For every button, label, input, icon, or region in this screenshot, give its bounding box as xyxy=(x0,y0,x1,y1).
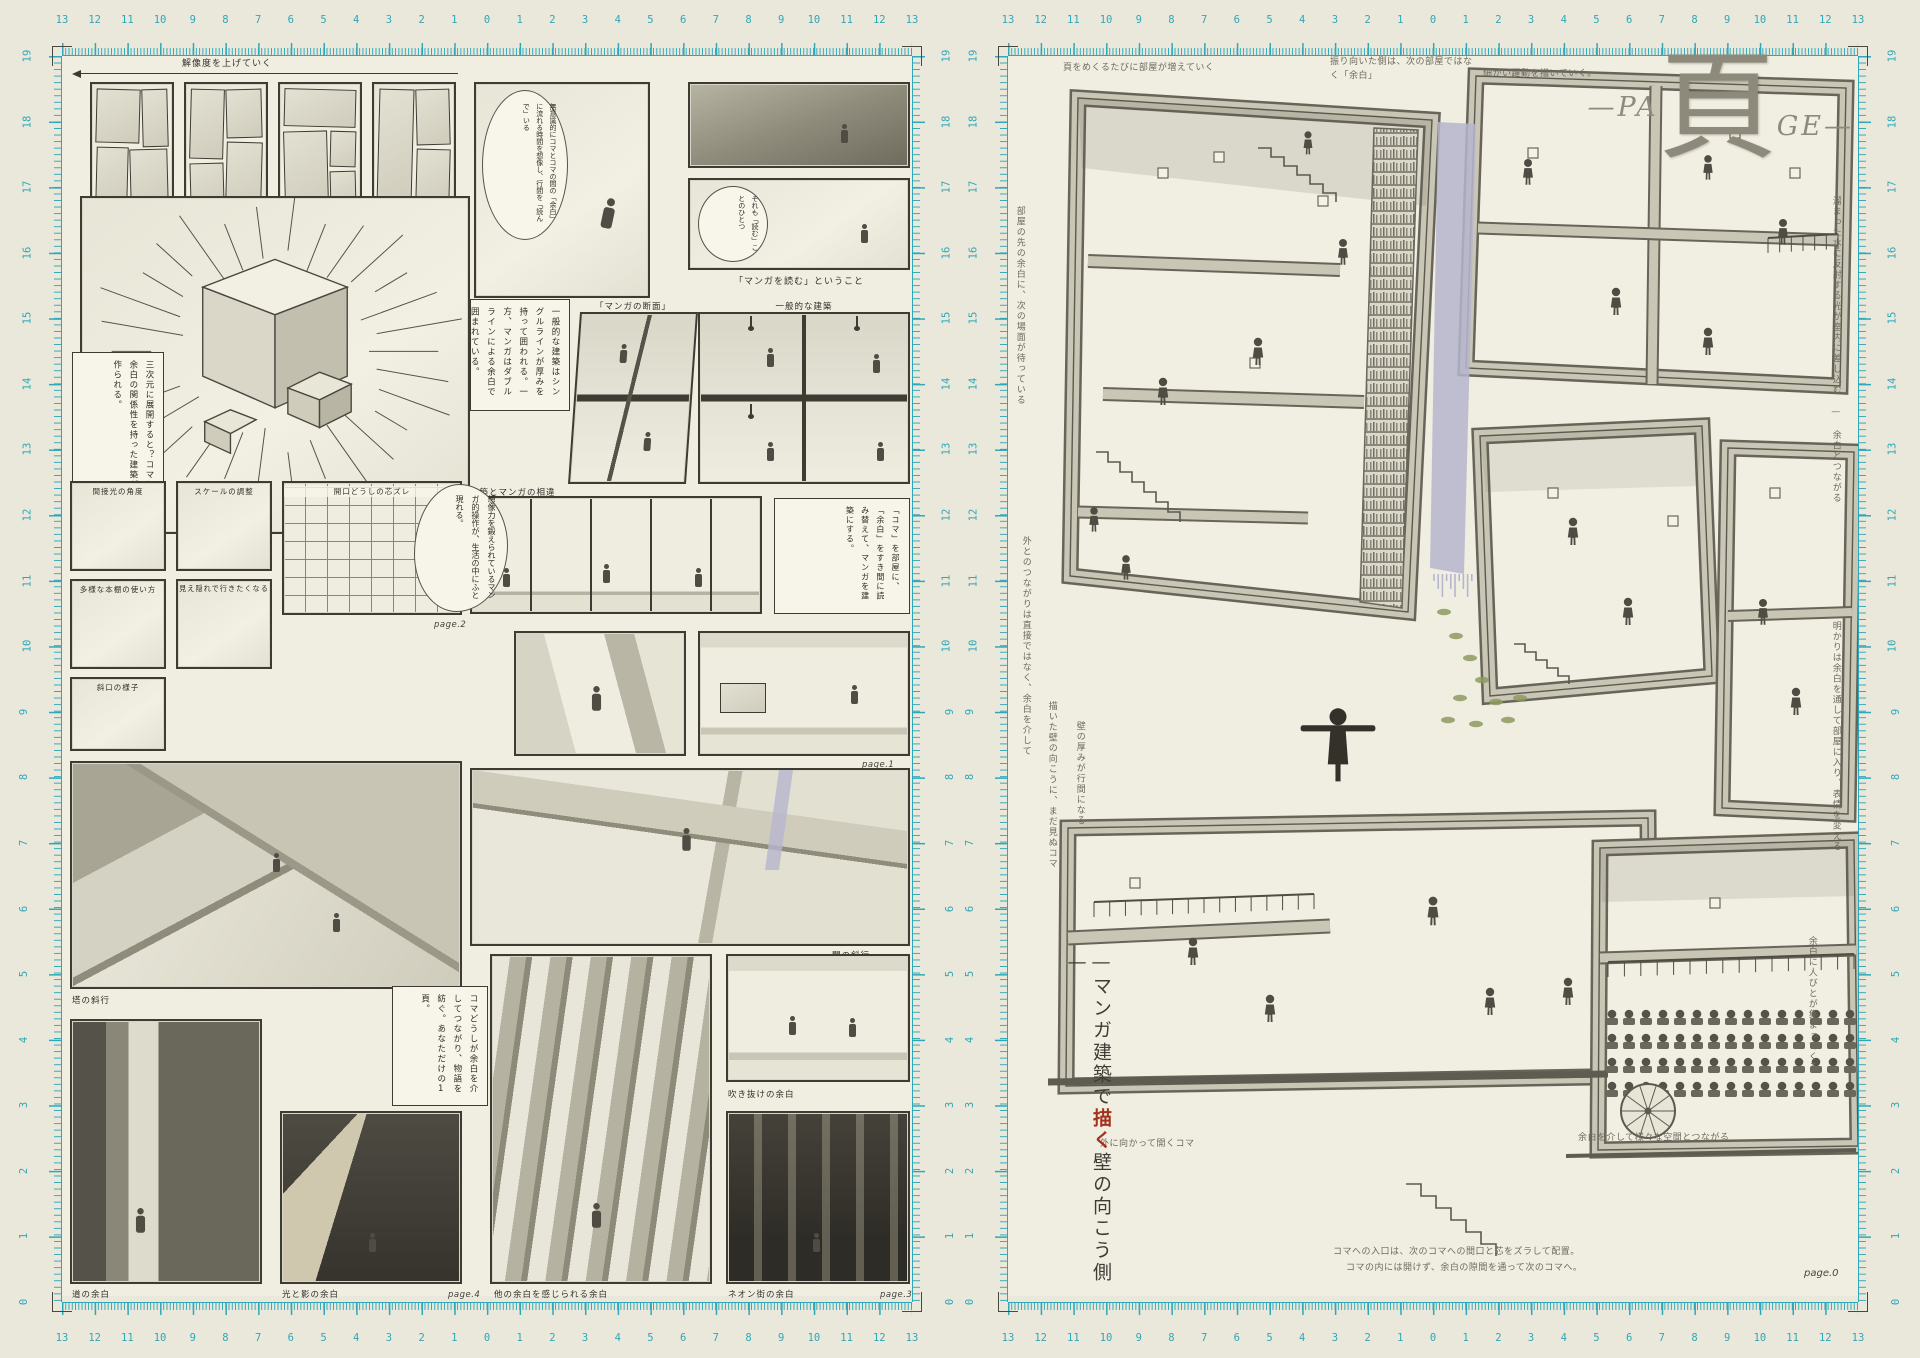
ruler-number: 5 xyxy=(1593,14,1599,26)
ruler-number: 8 xyxy=(1168,14,1174,26)
page2-label: page.2 xyxy=(434,620,466,630)
ruler-number: 0 xyxy=(944,1299,956,1305)
corridor-panel xyxy=(514,631,686,756)
project-title-red: 描く xyxy=(1090,1108,1112,1152)
cube-text-box: 三次元に展開すると？コマと余白の関係性を持った建築が作られる。 xyxy=(72,352,164,502)
ruler-number: 17 xyxy=(1887,181,1899,194)
ruler-number: 1 xyxy=(1890,1233,1902,1239)
thumbnail-sub-panel xyxy=(189,89,224,160)
ruler-number: 14 xyxy=(21,378,33,391)
ruler-left: 191817161514131211109876543210 xyxy=(18,56,62,1302)
ruler-number: 10 xyxy=(1100,1332,1113,1344)
manga-page-thumbnail xyxy=(278,82,362,214)
ruler-number: 2 xyxy=(549,14,555,26)
ruler-number: 5 xyxy=(320,1332,326,1344)
ruler-number: 12 xyxy=(1819,14,1832,26)
ruler-number: 14 xyxy=(941,378,953,391)
building-section-drawing xyxy=(1008,56,1858,1296)
ruler-number: 17 xyxy=(941,181,953,194)
figure-silhouette xyxy=(642,432,652,452)
ruler-number: 6 xyxy=(18,905,30,911)
ruler-ticks xyxy=(49,56,62,1302)
ruler-number: 5 xyxy=(320,14,326,26)
figure-silhouette xyxy=(332,913,341,933)
ruler-number: 0 xyxy=(1430,14,1436,26)
ruler-number: 7 xyxy=(713,1332,719,1344)
ruler-number: 16 xyxy=(941,246,953,259)
ruler-number: 18 xyxy=(1887,115,1899,128)
ruler-number: 11 xyxy=(840,1332,853,1344)
general-arch-panel xyxy=(698,312,910,484)
figure-silhouette xyxy=(602,564,611,584)
ruler-number: 5 xyxy=(944,971,956,977)
ruler-number: 12 xyxy=(88,1332,101,1344)
hanging-lamp xyxy=(750,316,752,327)
ruler-number: 11 xyxy=(840,14,853,26)
ruler-number: 1 xyxy=(18,1233,30,1239)
ruler-number: 8 xyxy=(18,774,30,780)
ruler-number: 4 xyxy=(1561,14,1567,26)
ruler-top: 13121110987654321012345678910111213 xyxy=(62,10,912,56)
neon-margin-panel xyxy=(726,1111,910,1284)
ruler-number: 0 xyxy=(484,14,490,26)
thumbnail-sub-panel xyxy=(330,131,357,167)
ruler-number: 10 xyxy=(808,14,821,26)
annotation-n5: 描いた壁の向こうに、まだ見ぬコマ xyxy=(1046,701,1057,916)
ruler-number: 13 xyxy=(56,1332,69,1344)
ruler-number: 11 xyxy=(941,574,953,587)
annotation-b2: 余白を介して様々な空間とつながる xyxy=(1578,1132,1748,1146)
ruler-number: 7 xyxy=(1201,1332,1207,1344)
ruler-ticks xyxy=(62,43,912,56)
figure-silhouette xyxy=(135,1208,147,1234)
project-title-vertical: —マンガ建築で描く壁の向こう側— xyxy=(1066,951,1115,1301)
ruler-number: 8 xyxy=(745,14,751,26)
ruler-number: 1 xyxy=(451,14,457,26)
figure-silhouette xyxy=(766,348,775,368)
ruler-number: 9 xyxy=(944,709,956,715)
page4-label: page.4 xyxy=(448,1290,480,1300)
figure-silhouette xyxy=(591,686,603,712)
annotation-b3b: コマの内には開けず、余白の隙間を通って次のコマへ。 xyxy=(1346,1262,1816,1276)
ruler-number: 10 xyxy=(154,14,167,26)
ruler-number: 8 xyxy=(1890,774,1902,780)
ruler-number: 12 xyxy=(873,14,886,26)
left-page-content: 解像度を上げていく 読み手側 無意識的にコマとコマの間の「余白」に流れる時間を想… xyxy=(62,56,912,1296)
ruler-ticks xyxy=(1858,56,1871,1302)
ruler-number: 12 xyxy=(1819,1332,1832,1344)
ruler-number: 9 xyxy=(778,14,784,26)
ruler-number: 10 xyxy=(154,1332,167,1344)
ruler-number: 12 xyxy=(1034,14,1047,26)
road-margin-panel xyxy=(70,1019,262,1284)
reading-caption: 「マンガを読む」ということ xyxy=(688,274,910,287)
thumbnail-sub-panel xyxy=(283,131,329,206)
thumbnail-sub-panel xyxy=(284,88,357,128)
ops-caption: 間接光の角度 xyxy=(72,486,164,497)
ruler-number: 1 xyxy=(517,14,523,26)
ruler-number: 13 xyxy=(21,443,33,456)
manga-section-panel xyxy=(568,312,698,484)
digest-text-box: 「コマ」を部屋に、「余白」をすき間に読み替えて、マンガを建築にする。 xyxy=(774,498,910,614)
ruler-number: 18 xyxy=(21,115,33,128)
annotation-r3: 余白に人びとが集まってくる xyxy=(1806,936,1817,1166)
ruler-number: 5 xyxy=(647,14,653,26)
ruler-number: 9 xyxy=(190,1332,196,1344)
ruler-number: 1 xyxy=(1463,1332,1469,1344)
ruler-number: 1 xyxy=(1397,1332,1403,1344)
ruler-number: 5 xyxy=(1593,1332,1599,1344)
top-right-panel-2: それも「読む」ことのひとつ xyxy=(688,178,910,270)
ruler-number: 8 xyxy=(222,1332,228,1344)
figure-silhouette xyxy=(840,124,849,144)
title-dash-tail: — xyxy=(1824,111,1854,142)
ruler-number: 15 xyxy=(941,312,953,325)
ruler-number: 5 xyxy=(18,971,30,977)
ruler-number: 9 xyxy=(778,1332,784,1344)
ruler-number: 11 xyxy=(121,1332,134,1344)
annotation-r2: 明かりは余白を通して部屋に入り、表情を変える xyxy=(1830,621,1841,906)
ruler-number: 8 xyxy=(1691,1332,1697,1344)
ruler-number: 10 xyxy=(941,640,953,653)
ruler-left: 191817161514131211109876543210 xyxy=(964,56,1008,1302)
ruler-number: 4 xyxy=(1561,1332,1567,1344)
figure-silhouette xyxy=(618,344,628,364)
ruler-number: 6 xyxy=(964,905,976,911)
beam-slant-drawing xyxy=(470,768,910,946)
ruler-number: 15 xyxy=(967,312,979,325)
figure-silhouette xyxy=(850,685,859,705)
ruler-number: 13 xyxy=(56,14,69,26)
ruler-number: 13 xyxy=(906,1332,919,1344)
tower-slant-caption: 塔の斜行 xyxy=(72,994,110,1006)
neon-margin-caption: ネオン街の余白 xyxy=(728,1288,795,1300)
ops-caption: 見え隠れで行きたくなる xyxy=(178,584,270,594)
ruler-number: 4 xyxy=(1890,1037,1902,1043)
right-page: 13121110987654321012345678910111213 1312… xyxy=(964,10,1902,1348)
title-dash: — xyxy=(1588,92,1618,123)
thought-bubble: 想像力を鍛えられているマンガ的操作が、生活の中にふと現れる。 xyxy=(414,484,508,612)
ruler-number: 3 xyxy=(386,1332,392,1344)
ruler-right: 191817161514131211109876543210 xyxy=(1858,56,1902,1302)
ruler-number: 18 xyxy=(967,115,979,128)
drawing-board: { "colors":{"ruler":"#2fa7ba","accent_re… xyxy=(0,0,1920,1358)
ruler-number: 14 xyxy=(967,378,979,391)
waterfall-crack xyxy=(765,770,793,870)
ruler-number: 1 xyxy=(517,1332,523,1344)
ruler-number: 7 xyxy=(1890,840,1902,846)
figure-silhouette xyxy=(368,1233,377,1253)
ruler-number: 2 xyxy=(964,1168,976,1174)
ops-caption: スケールの調整 xyxy=(178,486,270,497)
ruler-number: 10 xyxy=(967,640,979,653)
ruler-number: 1 xyxy=(964,1233,976,1239)
ruler-number: 1 xyxy=(944,1233,956,1239)
ruler-number: 5 xyxy=(1890,971,1902,977)
ruler-number: 17 xyxy=(967,181,979,194)
ruler-number: 11 xyxy=(1786,1332,1799,1344)
thumbnail-sub-panel xyxy=(95,89,140,144)
ruler-number: 16 xyxy=(1887,246,1899,259)
ruler-number: 2 xyxy=(549,1332,555,1344)
ruler-number: 6 xyxy=(680,14,686,26)
manga-page-thumbnail xyxy=(90,82,174,214)
ruler-number: 9 xyxy=(964,709,976,715)
ruler-number: 3 xyxy=(1332,1332,1338,1344)
connect-text-box: コマどうしが余白を介してつながり、物語を紡ぐ。あなただけの1頁。 xyxy=(392,986,488,1106)
ruler-number: 3 xyxy=(1332,14,1338,26)
manga-page-thumbnail xyxy=(372,82,456,214)
ruler-number: 7 xyxy=(964,840,976,846)
light-margin-caption: 光と影の余白 xyxy=(282,1288,339,1300)
page3-label: page.3 xyxy=(880,1290,912,1300)
ruler-number: 16 xyxy=(21,246,33,259)
ruler-number: 8 xyxy=(745,1332,751,1344)
pillars-margin-panel xyxy=(490,954,712,1284)
ruler-number: 11 xyxy=(121,14,134,26)
ruler-number: 13 xyxy=(1887,443,1899,456)
ruler-number: 13 xyxy=(1852,14,1865,26)
ops-panel-slant: 斜口の様子 xyxy=(70,677,166,751)
road-margin-caption: 道の余白 xyxy=(72,1288,110,1300)
ops-panel-shelves: 多様な本棚の使い方 xyxy=(70,579,166,669)
ops-panel-hide: 見え隠れで行きたくなる xyxy=(176,579,272,669)
line-text-box: 一般的な建築はシングルラインが厚みを持って囲われる。一方、マンガはダブルラインに… xyxy=(470,299,570,411)
figure-silhouette xyxy=(812,1233,821,1253)
page-title: — PA 頁 GE — xyxy=(1588,48,1854,166)
resolution-caption: 解像度を上げていく xyxy=(182,56,272,69)
ruler-number: 11 xyxy=(1786,14,1799,26)
ruler-number: 9 xyxy=(1136,14,1142,26)
thumbnail-sub-panel xyxy=(225,89,262,139)
ruler-number: 2 xyxy=(18,1168,30,1174)
ruler-number: 6 xyxy=(1234,1332,1240,1344)
ruler-number: 8 xyxy=(1691,14,1697,26)
ruler-number: 6 xyxy=(1890,905,1902,911)
ruler-number: 13 xyxy=(906,14,919,26)
ruler-number: 2 xyxy=(1495,1332,1501,1344)
reading-man-panel: 無意識的にコマとコマの間の「余白」に流れる時間を想像し、行間を「読んで」いる xyxy=(474,82,650,298)
desk xyxy=(720,683,766,713)
ruler-number: 11 xyxy=(1067,14,1080,26)
ruler-right: 191817161514131211109876543210 xyxy=(912,56,956,1302)
ruler-number: 19 xyxy=(967,50,979,63)
ruler-number: 7 xyxy=(1659,14,1665,26)
thumbnail-sub-panel xyxy=(415,89,451,146)
ruler-number: 4 xyxy=(1299,1332,1305,1344)
ruler-number: 13 xyxy=(1852,1332,1865,1344)
ruler-number: 2 xyxy=(1364,1332,1370,1344)
ops-caption: 斜口の様子 xyxy=(72,682,164,693)
ruler-number: 12 xyxy=(88,14,101,26)
ruler-number: 2 xyxy=(418,1332,424,1344)
hanging-lamp xyxy=(750,404,752,415)
ruler-number: 0 xyxy=(18,1299,30,1305)
ruler-number: 11 xyxy=(1887,574,1899,587)
comparison-strip-panel xyxy=(470,496,762,614)
ruler-number: 9 xyxy=(1724,1332,1730,1344)
ruler-number: 0 xyxy=(484,1332,490,1344)
ruler-number: 9 xyxy=(1724,14,1730,26)
figure-silhouette xyxy=(876,442,885,462)
ruler-number: 7 xyxy=(944,840,956,846)
ruler-number: 13 xyxy=(941,443,953,456)
ruler-number: 3 xyxy=(582,14,588,26)
ruler-number: 10 xyxy=(21,640,33,653)
section-caption: 「マンガの断面」 xyxy=(574,300,692,312)
top-right-panel xyxy=(688,82,910,168)
ruler-number: 0 xyxy=(1890,1299,1902,1305)
ruler-number: 3 xyxy=(1528,1332,1534,1344)
ruler-number: 11 xyxy=(1067,1332,1080,1344)
thumbnail-sub-panel xyxy=(376,89,414,206)
ruler-number: 3 xyxy=(1890,1102,1902,1108)
ruler-number: 13 xyxy=(967,443,979,456)
ruler-number: 3 xyxy=(582,1332,588,1344)
ruler-number: 8 xyxy=(944,774,956,780)
ruler-number: 8 xyxy=(964,774,976,780)
ruler-number: 10 xyxy=(1100,14,1113,26)
ruler-number: 7 xyxy=(1659,1332,1665,1344)
ruler-number: 2 xyxy=(1495,14,1501,26)
ruler-number: 7 xyxy=(1201,14,1207,26)
ruler-number: 12 xyxy=(967,509,979,522)
annotation-b1: 外に向かって開くコマ xyxy=(1100,1138,1280,1152)
ruler-number: 6 xyxy=(1626,1332,1632,1344)
ruler-number: 10 xyxy=(808,1332,821,1344)
ruler-number: 12 xyxy=(941,509,953,522)
light-shadow-panel xyxy=(280,1111,462,1284)
ruler-number: 10 xyxy=(1754,1332,1767,1344)
ruler-number: 11 xyxy=(21,574,33,587)
figure-silhouette xyxy=(694,568,703,588)
ruler-ticks xyxy=(912,56,925,1302)
title-ge: GE xyxy=(1777,111,1824,142)
ruler-number: 3 xyxy=(386,14,392,26)
figure-silhouette xyxy=(598,197,619,231)
void-margin-panel xyxy=(726,954,910,1082)
ruler-number: 9 xyxy=(190,14,196,26)
ruler-number: 2 xyxy=(418,14,424,26)
figure-silhouette xyxy=(848,1018,857,1038)
ruler-number: 1 xyxy=(1397,14,1403,26)
ruler-number: 19 xyxy=(941,50,953,63)
ops-panel-light: 間接光の角度 xyxy=(70,481,166,571)
ruler-number: 12 xyxy=(1034,1332,1047,1344)
annotation-n1: 振り向いた側は、次の部屋ではなく「余白」 xyxy=(1330,56,1480,83)
figure-silhouette xyxy=(272,853,281,873)
project-title-pre: —マンガ建築で xyxy=(1090,951,1112,1108)
ruler-number: 9 xyxy=(18,709,30,715)
figure-silhouette xyxy=(591,1203,603,1229)
ruler-number: 4 xyxy=(615,14,621,26)
resolution-arrow xyxy=(78,73,458,74)
right-page-content: — PA 頁 GE — —マンガ建築で描く壁の向こう側— 頁をめくるたびに部屋が… xyxy=(1008,56,1858,1296)
ruler-number: 17 xyxy=(21,181,33,194)
ruler-number: 7 xyxy=(18,840,30,846)
ruler-number: 5 xyxy=(1266,1332,1272,1344)
ruler-number: 3 xyxy=(944,1102,956,1108)
ruler-number: 2 xyxy=(1890,1168,1902,1174)
ruler-number: 12 xyxy=(21,509,33,522)
ruler-number: 3 xyxy=(1528,14,1534,26)
ruler-number: 10 xyxy=(1887,640,1899,653)
reading-speech-bubble: 無意識的にコマとコマの間の「余白」に流れる時間を想像し、行間を「読んで」いる xyxy=(482,90,568,240)
general-arch-caption: 一般的な建築 xyxy=(698,300,910,312)
title-kanji: 頁 xyxy=(1659,48,1777,166)
annotation-n0: 頁をめくるたびに部屋が増えていく xyxy=(1063,62,1233,76)
ops-caption: 多様な本棚の使い方 xyxy=(72,584,164,595)
figure-silhouette xyxy=(872,354,881,374)
ruler-number: 1 xyxy=(451,1332,457,1344)
ruler-bottom: 13121110987654321012345678910111213 xyxy=(62,1302,912,1348)
ruler-number: 4 xyxy=(615,1332,621,1344)
ruler-number: 15 xyxy=(21,312,33,325)
others-margin-caption: 他の余白を感じられる余白 xyxy=(494,1288,608,1300)
page0-label: page.0 xyxy=(1804,1268,1839,1279)
ruler-number: 5 xyxy=(964,971,976,977)
desk-panel xyxy=(698,631,910,756)
ruler-number: 7 xyxy=(713,14,719,26)
ruler-number: 6 xyxy=(944,905,956,911)
ruler-number: 4 xyxy=(944,1037,956,1043)
ruler-ticks xyxy=(62,1302,912,1315)
annotation-r1: 溜まった水に反射する光が室内に差し込む — 余白とつながる xyxy=(1830,196,1841,546)
ruler-number: 15 xyxy=(1887,312,1899,325)
ruler-number: 6 xyxy=(1234,14,1240,26)
ruler-number: 7 xyxy=(255,1332,261,1344)
ruler-number: 4 xyxy=(353,1332,359,1344)
ruler-number: 6 xyxy=(680,1332,686,1344)
ruler-number: 14 xyxy=(1887,378,1899,391)
ruler-number: 8 xyxy=(222,14,228,26)
ruler-number: 18 xyxy=(941,115,953,128)
ruler-number: 12 xyxy=(873,1332,886,1344)
ruler-bottom: 13121110987654321012345678910111213 xyxy=(1008,1302,1858,1348)
ruler-number: 7 xyxy=(255,14,261,26)
ruler-number: 0 xyxy=(1430,1332,1436,1344)
figure-silhouette xyxy=(681,828,692,852)
ruler-number: 6 xyxy=(288,1332,294,1344)
sore-speech-bubble: それも「読む」ことのひとつ xyxy=(698,186,768,262)
ruler-number: 1 xyxy=(1463,14,1469,26)
left-page: 13121110987654321012345678910111213 1312… xyxy=(18,10,956,1348)
ruler-number: 6 xyxy=(288,14,294,26)
ruler-number: 6 xyxy=(1626,14,1632,26)
ruler-number: 4 xyxy=(964,1037,976,1043)
ruler-number: 5 xyxy=(1266,14,1272,26)
ruler-number: 0 xyxy=(964,1299,976,1305)
ruler-number: 19 xyxy=(1887,50,1899,63)
annotation-n6: 壁の厚みが行間になる xyxy=(1074,721,1085,916)
ruler-number: 5 xyxy=(647,1332,653,1344)
thumbnail-sub-panel xyxy=(142,89,169,147)
title-pa: PA xyxy=(1618,92,1659,123)
hanging-lamp xyxy=(856,316,858,327)
ruler-number: 9 xyxy=(1890,709,1902,715)
ruler-number: 13 xyxy=(1002,14,1015,26)
void-margin-caption: 吹き抜けの余白 xyxy=(728,1088,795,1100)
manga-page-thumbnail xyxy=(184,82,268,214)
ruler-number: 12 xyxy=(1887,509,1899,522)
ruler-number: 11 xyxy=(967,574,979,587)
ruler-number: 2 xyxy=(1364,14,1370,26)
ruler-number: 13 xyxy=(1002,1332,1015,1344)
ruler-number: 9 xyxy=(1136,1332,1142,1344)
ruler-number: 8 xyxy=(1168,1332,1174,1344)
ruler-number: 10 xyxy=(1754,14,1767,26)
ruler-number: 16 xyxy=(967,246,979,259)
